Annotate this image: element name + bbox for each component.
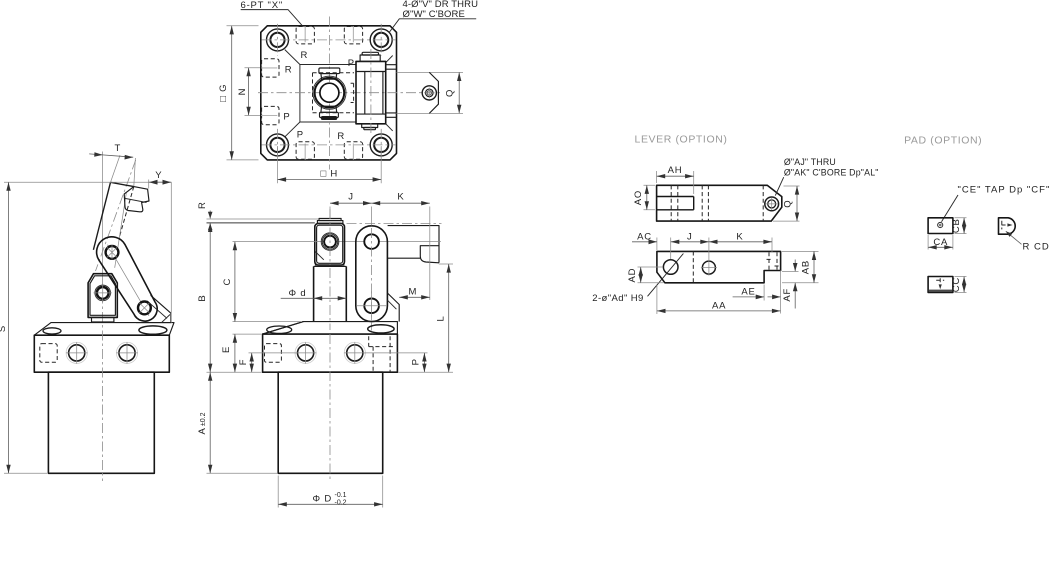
svg-text:-0.2: -0.2 — [335, 500, 347, 507]
svg-text:E: E — [221, 346, 232, 353]
svg-text:-0.1: -0.1 — [335, 492, 347, 499]
svg-text:Φ d: Φ d — [289, 288, 307, 299]
svg-text:AF: AF — [782, 288, 793, 302]
svg-text:C: C — [222, 278, 233, 286]
svg-text:Q: Q — [445, 89, 456, 97]
svg-text:AE: AE — [741, 286, 755, 297]
svg-text:"CE" TAP Dp "CF": "CE" TAP Dp "CF" — [958, 185, 1051, 196]
svg-text:AD: AD — [627, 268, 638, 283]
svg-text:R: R — [197, 201, 208, 209]
svg-text:AA: AA — [712, 300, 726, 311]
svg-text:Y: Y — [155, 170, 162, 181]
svg-text:K: K — [397, 192, 404, 203]
svg-text:F: F — [238, 359, 249, 366]
svg-text:AB: AB — [800, 260, 811, 274]
svg-text:AH: AH — [668, 165, 683, 176]
svg-text:CB: CB — [951, 218, 962, 233]
svg-text:M: M — [408, 287, 417, 298]
svg-text:L: L — [436, 315, 447, 321]
svg-text:PAD (OPTION): PAD (OPTION) — [904, 135, 982, 147]
svg-text:R: R — [337, 131, 344, 142]
svg-text:AO: AO — [633, 190, 644, 205]
svg-text:2-ø"Ad" H9: 2-ø"Ad" H9 — [592, 293, 643, 304]
svg-text:□ G: □ G — [218, 84, 229, 102]
svg-text:S: S — [0, 325, 8, 332]
svg-text:R: R — [285, 65, 292, 76]
svg-text:B: B — [197, 294, 208, 301]
svg-text:CA: CA — [933, 237, 948, 248]
svg-text:N: N — [237, 88, 248, 96]
svg-text:K: K — [736, 231, 743, 242]
svg-text:Q: Q — [783, 199, 794, 207]
svg-text:T: T — [114, 143, 121, 154]
svg-text:J: J — [348, 192, 354, 203]
svg-text:P: P — [410, 358, 421, 365]
svg-text:Φ D: Φ D — [313, 493, 332, 504]
svg-text:J: J — [687, 231, 693, 242]
svg-text:P: P — [297, 130, 303, 141]
svg-text:P: P — [283, 112, 289, 123]
svg-text:R CD: R CD — [1023, 242, 1050, 253]
svg-text:R: R — [301, 50, 308, 61]
svg-text:Ø"AJ" THRU: Ø"AJ" THRU — [784, 157, 836, 167]
svg-text:P: P — [348, 58, 354, 69]
svg-text:□ H: □ H — [320, 169, 338, 180]
svg-text:AC: AC — [637, 231, 652, 242]
svg-text:CC: CC — [951, 277, 962, 292]
svg-text:Ø"W" C'BORE: Ø"W" C'BORE — [403, 9, 465, 20]
svg-text:LEVER (OPTION): LEVER (OPTION) — [635, 134, 728, 146]
svg-text:Ø"AK" C'BORE Dp"AL": Ø"AK" C'BORE Dp"AL" — [784, 167, 879, 177]
